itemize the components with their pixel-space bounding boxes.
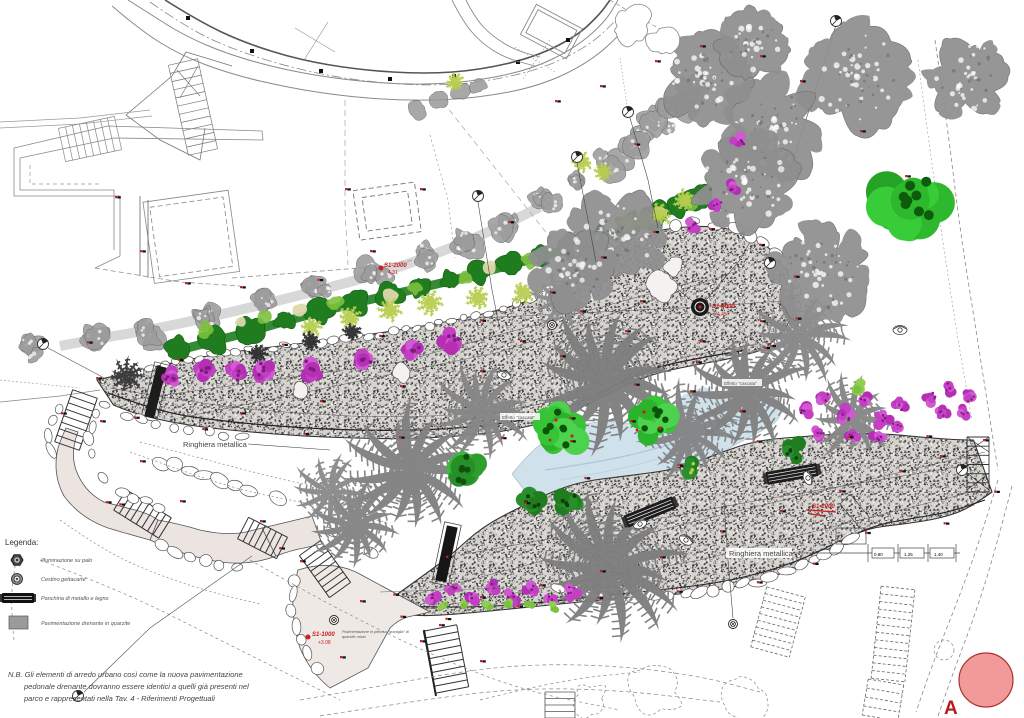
svg-text:4.31: 4.31 [388,270,398,276]
svg-text:1.25: 1.25 [904,552,913,557]
svg-text:Pavimentazione drenante in qua: Pavimentazione drenante in quarzite [41,621,130,627]
svg-text:7.1g: 7.1g [508,585,517,590]
svg-text:N.B. Gli elementi di arredo ur: N.B. Gli elementi di arredo urbano così … [8,670,243,679]
svg-text:Ringhiera metallica: Ringhiera metallica [729,549,794,558]
svg-text:Cestino gettacarte: Cestino gettacarte [41,577,86,583]
svg-text:A: A [944,698,958,718]
svg-text:Pavimentazione in pietra a "gr: Pavimentazione in pietra a "graniglia" d… [342,630,409,634]
svg-text:S1-2000: S1-2000 [384,263,407,269]
svg-text:1.40: 1.40 [934,552,943,557]
svg-text:Effetto "cascata": Effetto "cascata" [724,381,757,386]
svg-text:pedonale drenante dovranno ess: pedonale drenante dovranno essere identi… [23,682,249,691]
svg-text:+4.45: +4.45 [714,312,727,318]
svg-text:parco e rappresentati nella Ta: parco e rappresentati nella Tav. 4 - Rif… [23,694,215,703]
svg-text:Ringhiera metallica: Ringhiera metallica [183,440,248,449]
svg-text:0.80: 0.80 [874,552,883,557]
svg-text:S1-2000: S1-2000 [812,504,835,510]
svg-text:Legenda:: Legenda: [5,538,38,547]
svg-text:Illuminazione su palo: Illuminazione su palo [41,558,92,564]
svg-text:Panchina di metallo e legno: Panchina di metallo e legno [41,596,109,602]
svg-text:S1-4000: S1-4000 [712,304,735,310]
svg-text:Effetto "cascata": Effetto "cascata" [502,415,535,420]
svg-text:+3.08: +3.08 [318,640,331,646]
svg-text:quarzite mista: quarzite mista [342,635,366,639]
svg-text:S1-1000: S1-1000 [312,632,335,638]
